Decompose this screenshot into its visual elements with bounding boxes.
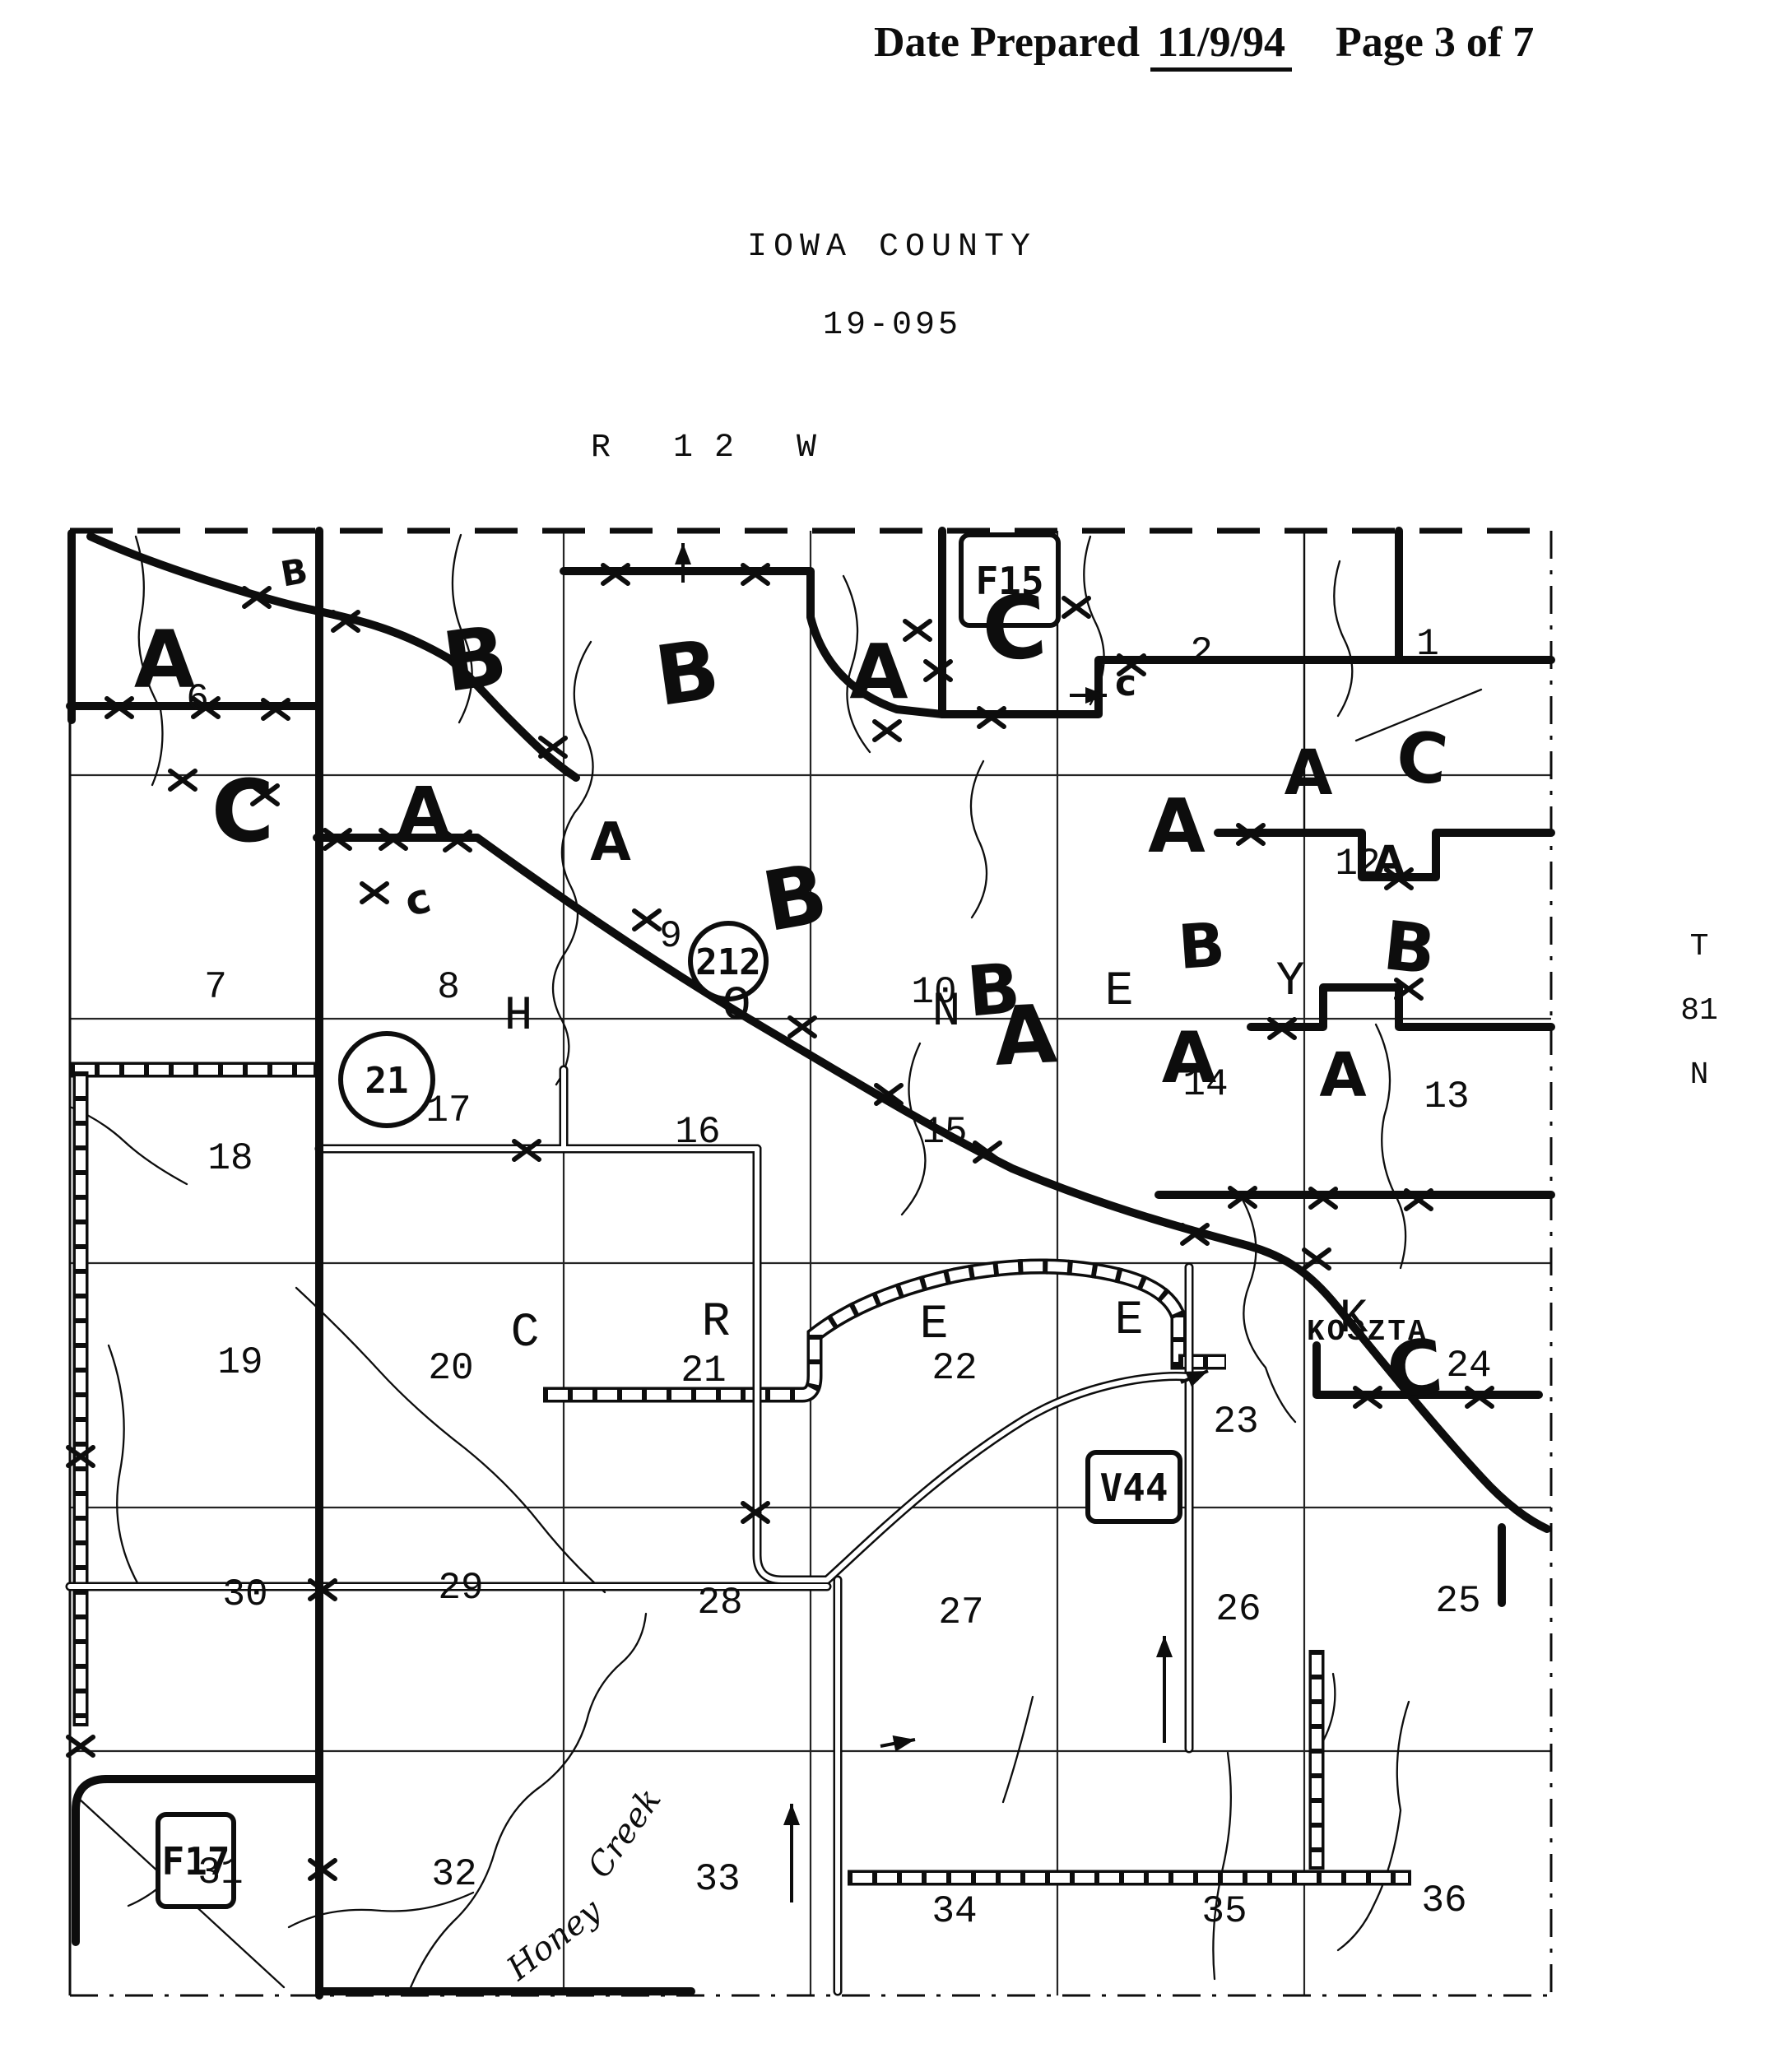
- hand-drawn-letter: B: [755, 845, 834, 950]
- crossing-x-marks: [68, 565, 1492, 1879]
- township-name-letter: E: [1105, 965, 1134, 1019]
- township-name-letters: HONEYCREEK: [504, 955, 1368, 1360]
- hand-drawn-letter: C: [211, 761, 274, 862]
- hand-drawn-letter: A: [397, 774, 450, 852]
- scanned-map-page: Date Prepared 11/9/94 Page 3 of 7 IOWA C…: [0, 0, 1784, 2072]
- township-name-letter: R: [702, 1296, 731, 1350]
- section-number: 35: [1201, 1890, 1247, 1933]
- road-crossing-x-mark: [541, 738, 565, 756]
- place-labels: KOSZTAHoneyCreek: [499, 1315, 1429, 1988]
- section-number: 31: [197, 1851, 243, 1894]
- township-name-letter: H: [504, 990, 533, 1043]
- section-number: 15: [922, 1111, 967, 1154]
- road-crossing-x-mark: [362, 884, 387, 902]
- road-crossing-x-mark: [68, 1737, 93, 1755]
- hand-drawn-letter: A: [992, 987, 1059, 1085]
- section-number: 22: [931, 1347, 977, 1390]
- creek-name-word2: Creek: [581, 1782, 669, 1885]
- town-label-koszta: KOSZTA: [1307, 1315, 1429, 1349]
- section-number: 18: [207, 1137, 253, 1180]
- township-name-letter: N: [932, 986, 961, 1039]
- hand-drawn-letter: A: [1148, 783, 1206, 870]
- county-road-box-label: V44: [1099, 1466, 1168, 1510]
- section-number: 21: [681, 1350, 726, 1392]
- section-number: 23: [1213, 1401, 1258, 1443]
- section-number: 24: [1446, 1345, 1491, 1387]
- road-crossing-x-mark: [634, 911, 659, 929]
- road-crossing-x-mark: [875, 722, 899, 740]
- section-number: 30: [222, 1573, 267, 1616]
- section-number: 8: [437, 966, 460, 1009]
- arrow-head-icon: [675, 543, 691, 564]
- hand-drawn-letter: A: [590, 812, 631, 873]
- hand-drawn-letter: A: [134, 614, 195, 706]
- hand-drawn-letter: B: [1176, 909, 1227, 983]
- section-number: 32: [431, 1853, 476, 1896]
- hand-drawn-letter: c: [1115, 662, 1136, 704]
- route-markers: 21221F15V44F17: [158, 535, 1180, 1907]
- section-number: 28: [697, 1582, 742, 1624]
- hand-drawn-letter: B: [649, 621, 725, 725]
- section-number: 19: [217, 1341, 262, 1384]
- hand-drawn-letter: B: [1380, 907, 1439, 990]
- section-number: 33: [695, 1858, 740, 1901]
- section-number: 9: [659, 915, 682, 958]
- hand-drawn-letter: A: [1373, 838, 1404, 884]
- highway-circle-label: 21: [365, 1060, 409, 1102]
- creek-name-word1: Honey: [499, 1891, 609, 1988]
- hand-drawn-letter: c: [400, 874, 436, 927]
- road-crossing-x-mark: [170, 771, 195, 789]
- hand-drawn-letter: C: [1392, 715, 1452, 801]
- section-number: 20: [428, 1347, 473, 1390]
- hand-drawn-letter: C: [978, 576, 1049, 681]
- township-name-letter: E: [1115, 1294, 1144, 1348]
- section-number: 25: [1435, 1580, 1480, 1623]
- hand-drawn-letters: ABBCAcBACABBcAACABBAAAC: [134, 551, 1452, 1415]
- road-crossing-x-mark: [1304, 1250, 1329, 1268]
- hand-drawn-letter: B: [437, 607, 513, 711]
- section-number: 7: [204, 966, 227, 1009]
- section-number: 1: [1416, 623, 1439, 666]
- hand-drawn-letter: A: [1162, 1017, 1217, 1099]
- highway-circle-label: 212: [695, 941, 760, 983]
- section-number: 27: [938, 1591, 983, 1634]
- arrow-head-icon: [893, 1735, 915, 1752]
- hand-drawn-letter: A: [1285, 736, 1333, 809]
- hand-drawn-letter: B: [277, 551, 310, 595]
- township-name-letter: C: [511, 1307, 540, 1360]
- section-number: 16: [675, 1111, 720, 1154]
- section-number: 36: [1421, 1879, 1466, 1922]
- section-number: 13: [1424, 1075, 1469, 1118]
- road-crossing-x-mark: [1064, 598, 1089, 616]
- arrow-head-icon: [1156, 1636, 1173, 1657]
- section-number: 34: [931, 1890, 977, 1933]
- arrow-head-icon: [783, 1804, 800, 1825]
- section-number: 29: [438, 1567, 483, 1610]
- township-name-letter: O: [722, 980, 751, 1034]
- hand-drawn-letter: A: [1319, 1040, 1366, 1111]
- township-name-letter: E: [920, 1298, 949, 1352]
- road-crossing-x-mark: [905, 621, 930, 639]
- township-name-letter: Y: [1276, 955, 1305, 1009]
- section-number: 17: [425, 1089, 471, 1132]
- township-map: 21221F15V44F17 6217891012181716151413192…: [0, 0, 1784, 2072]
- section-number: 2: [1190, 631, 1213, 674]
- section-number: 26: [1215, 1588, 1261, 1631]
- hand-drawn-letter: A: [849, 628, 908, 716]
